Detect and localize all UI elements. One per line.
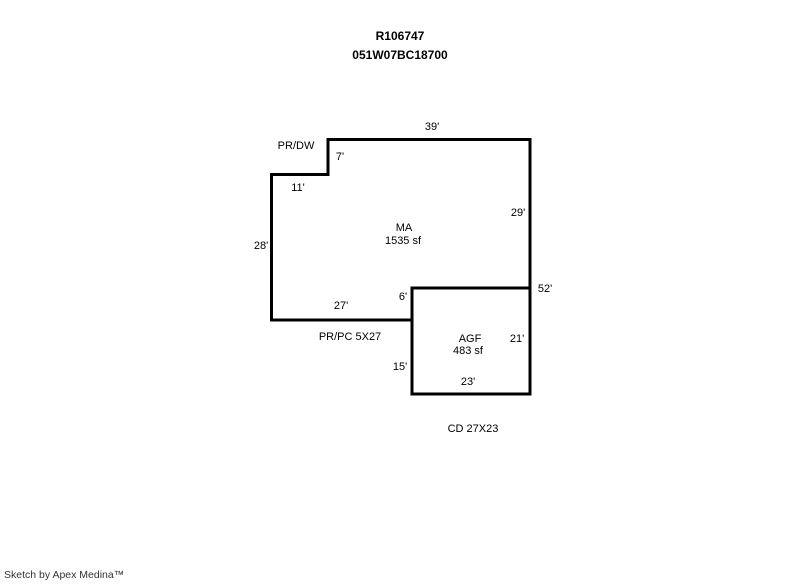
dimension-right-total: 52' bbox=[538, 283, 552, 295]
dimension-step-height: 6' bbox=[399, 291, 407, 303]
parcel-number: 051W07BC18700 bbox=[0, 46, 800, 65]
dimension-top-width: 39' bbox=[425, 121, 439, 133]
sketch-header: R106747 051W07BC18700 bbox=[0, 27, 800, 65]
dimension-agf-bottom: 23' bbox=[461, 376, 475, 388]
dimension-right-upper: 29' bbox=[511, 207, 525, 219]
dimension-agf-left: 15' bbox=[393, 361, 407, 373]
annotation-carport: CD 27X23 bbox=[448, 423, 499, 435]
dimension-left-height: 28' bbox=[254, 240, 268, 252]
area-sqft-agf: 483 sf bbox=[453, 345, 483, 357]
annotation-porch-pc: PR/PC 5X27 bbox=[319, 331, 381, 343]
area-code-agf: AGF bbox=[459, 333, 482, 345]
area-code-ma: MA bbox=[396, 222, 413, 234]
account-number: R106747 bbox=[0, 27, 800, 46]
property-sketch-page: R106747 051W07BC18700 39' PR/DW 7' 11' 2… bbox=[0, 0, 800, 587]
dimension-notch-height: 7' bbox=[336, 151, 344, 163]
annotation-porch-dw: PR/DW bbox=[278, 140, 315, 152]
sketch-credit: Sketch by Apex Medina™ bbox=[4, 569, 124, 581]
area-sqft-ma: 1535 sf bbox=[385, 235, 421, 247]
dimension-agf-right: 21' bbox=[510, 333, 524, 345]
dimension-ma-bottom-width: 27' bbox=[334, 300, 348, 312]
dimension-notch-width: 11' bbox=[291, 182, 305, 194]
